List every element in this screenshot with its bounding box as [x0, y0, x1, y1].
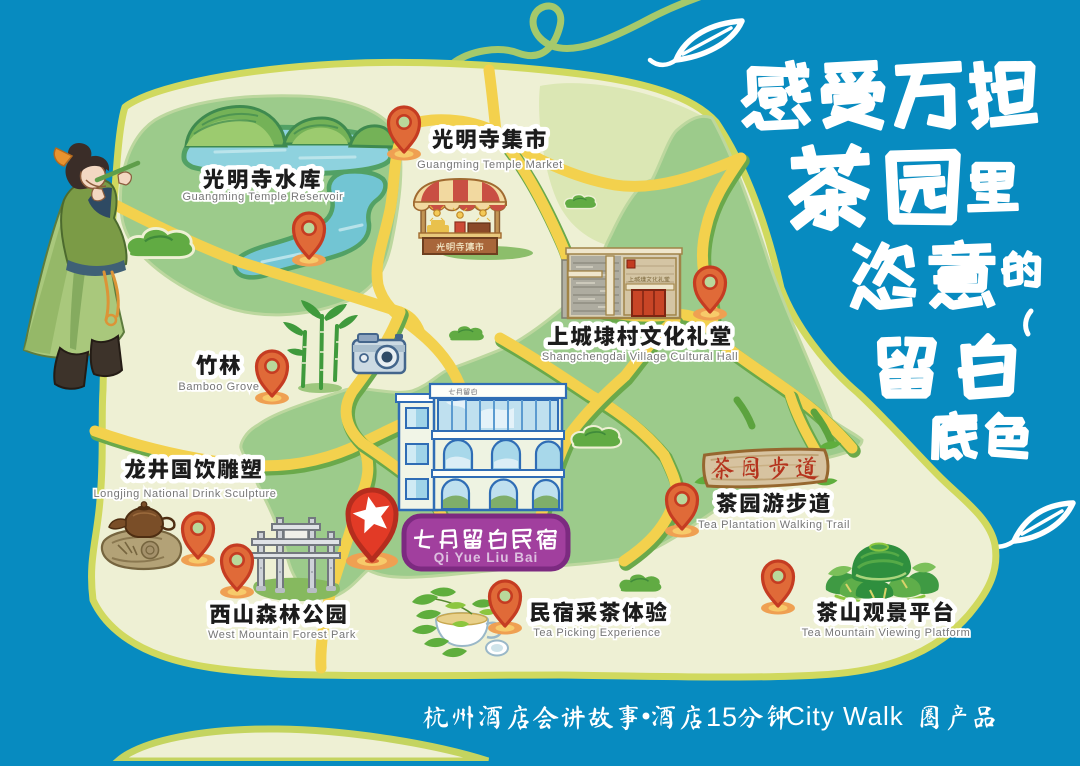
svg-text:15: 15	[706, 702, 738, 732]
svg-text:Shangchengdai Village Cultural: Shangchengdai Village Cultural Hall	[542, 351, 738, 363]
svg-text:Qi Yue Liu Bai: Qi Yue Liu Bai	[434, 550, 539, 565]
svg-text:Bamboo Grove: Bamboo Grove	[178, 381, 259, 393]
svg-text:City Walk: City Walk	[786, 701, 904, 731]
svg-text:West Mountain Forest Park: West Mountain Forest Park	[208, 629, 356, 641]
svg-text:Guangming Temple Market: Guangming Temple Market	[417, 159, 563, 171]
svg-text:Tea Picking Experience: Tea Picking Experience	[533, 627, 661, 639]
svg-text:Tea Mountain Viewing Platform: Tea Mountain Viewing Platform	[802, 627, 971, 639]
svg-text:Tea Plantation Walking Trail: Tea Plantation Walking Trail	[698, 519, 850, 531]
svg-text:Guangming Temple Reservoir: Guangming Temple Reservoir	[183, 191, 344, 203]
svg-text:Longjing National Drink Sculpt: Longjing National Drink Sculpture	[93, 488, 276, 500]
